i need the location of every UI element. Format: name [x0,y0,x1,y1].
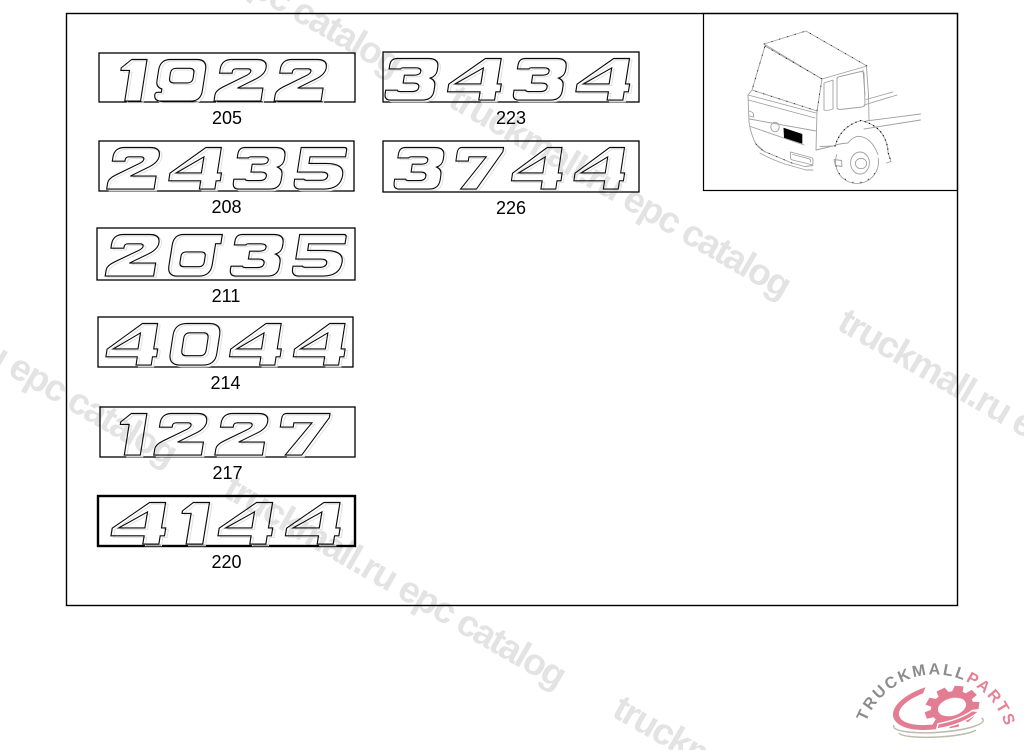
svg-text:223: 223 [496,108,526,128]
svg-text:214: 214 [210,373,240,393]
svg-text:truckmall.ru epc catalog: truckmall.ru epc catalog [832,300,1024,530]
svg-text:truckmall.ru epc catalog: truckmall.ru epc catalog [0,245,185,475]
svg-text:205: 205 [212,108,242,128]
svg-text:208: 208 [211,197,241,217]
svg-text:226: 226 [496,198,526,218]
svg-text:220: 220 [211,552,241,572]
svg-text:truckmall.ru epc catalog: truckmall.ru epc catalog [218,467,575,697]
svg-text:truckmall.ru epc catalog: truckmall.ru epc catalog [54,0,411,84]
svg-text:217: 217 [212,463,242,483]
svg-text:211: 211 [212,286,241,306]
